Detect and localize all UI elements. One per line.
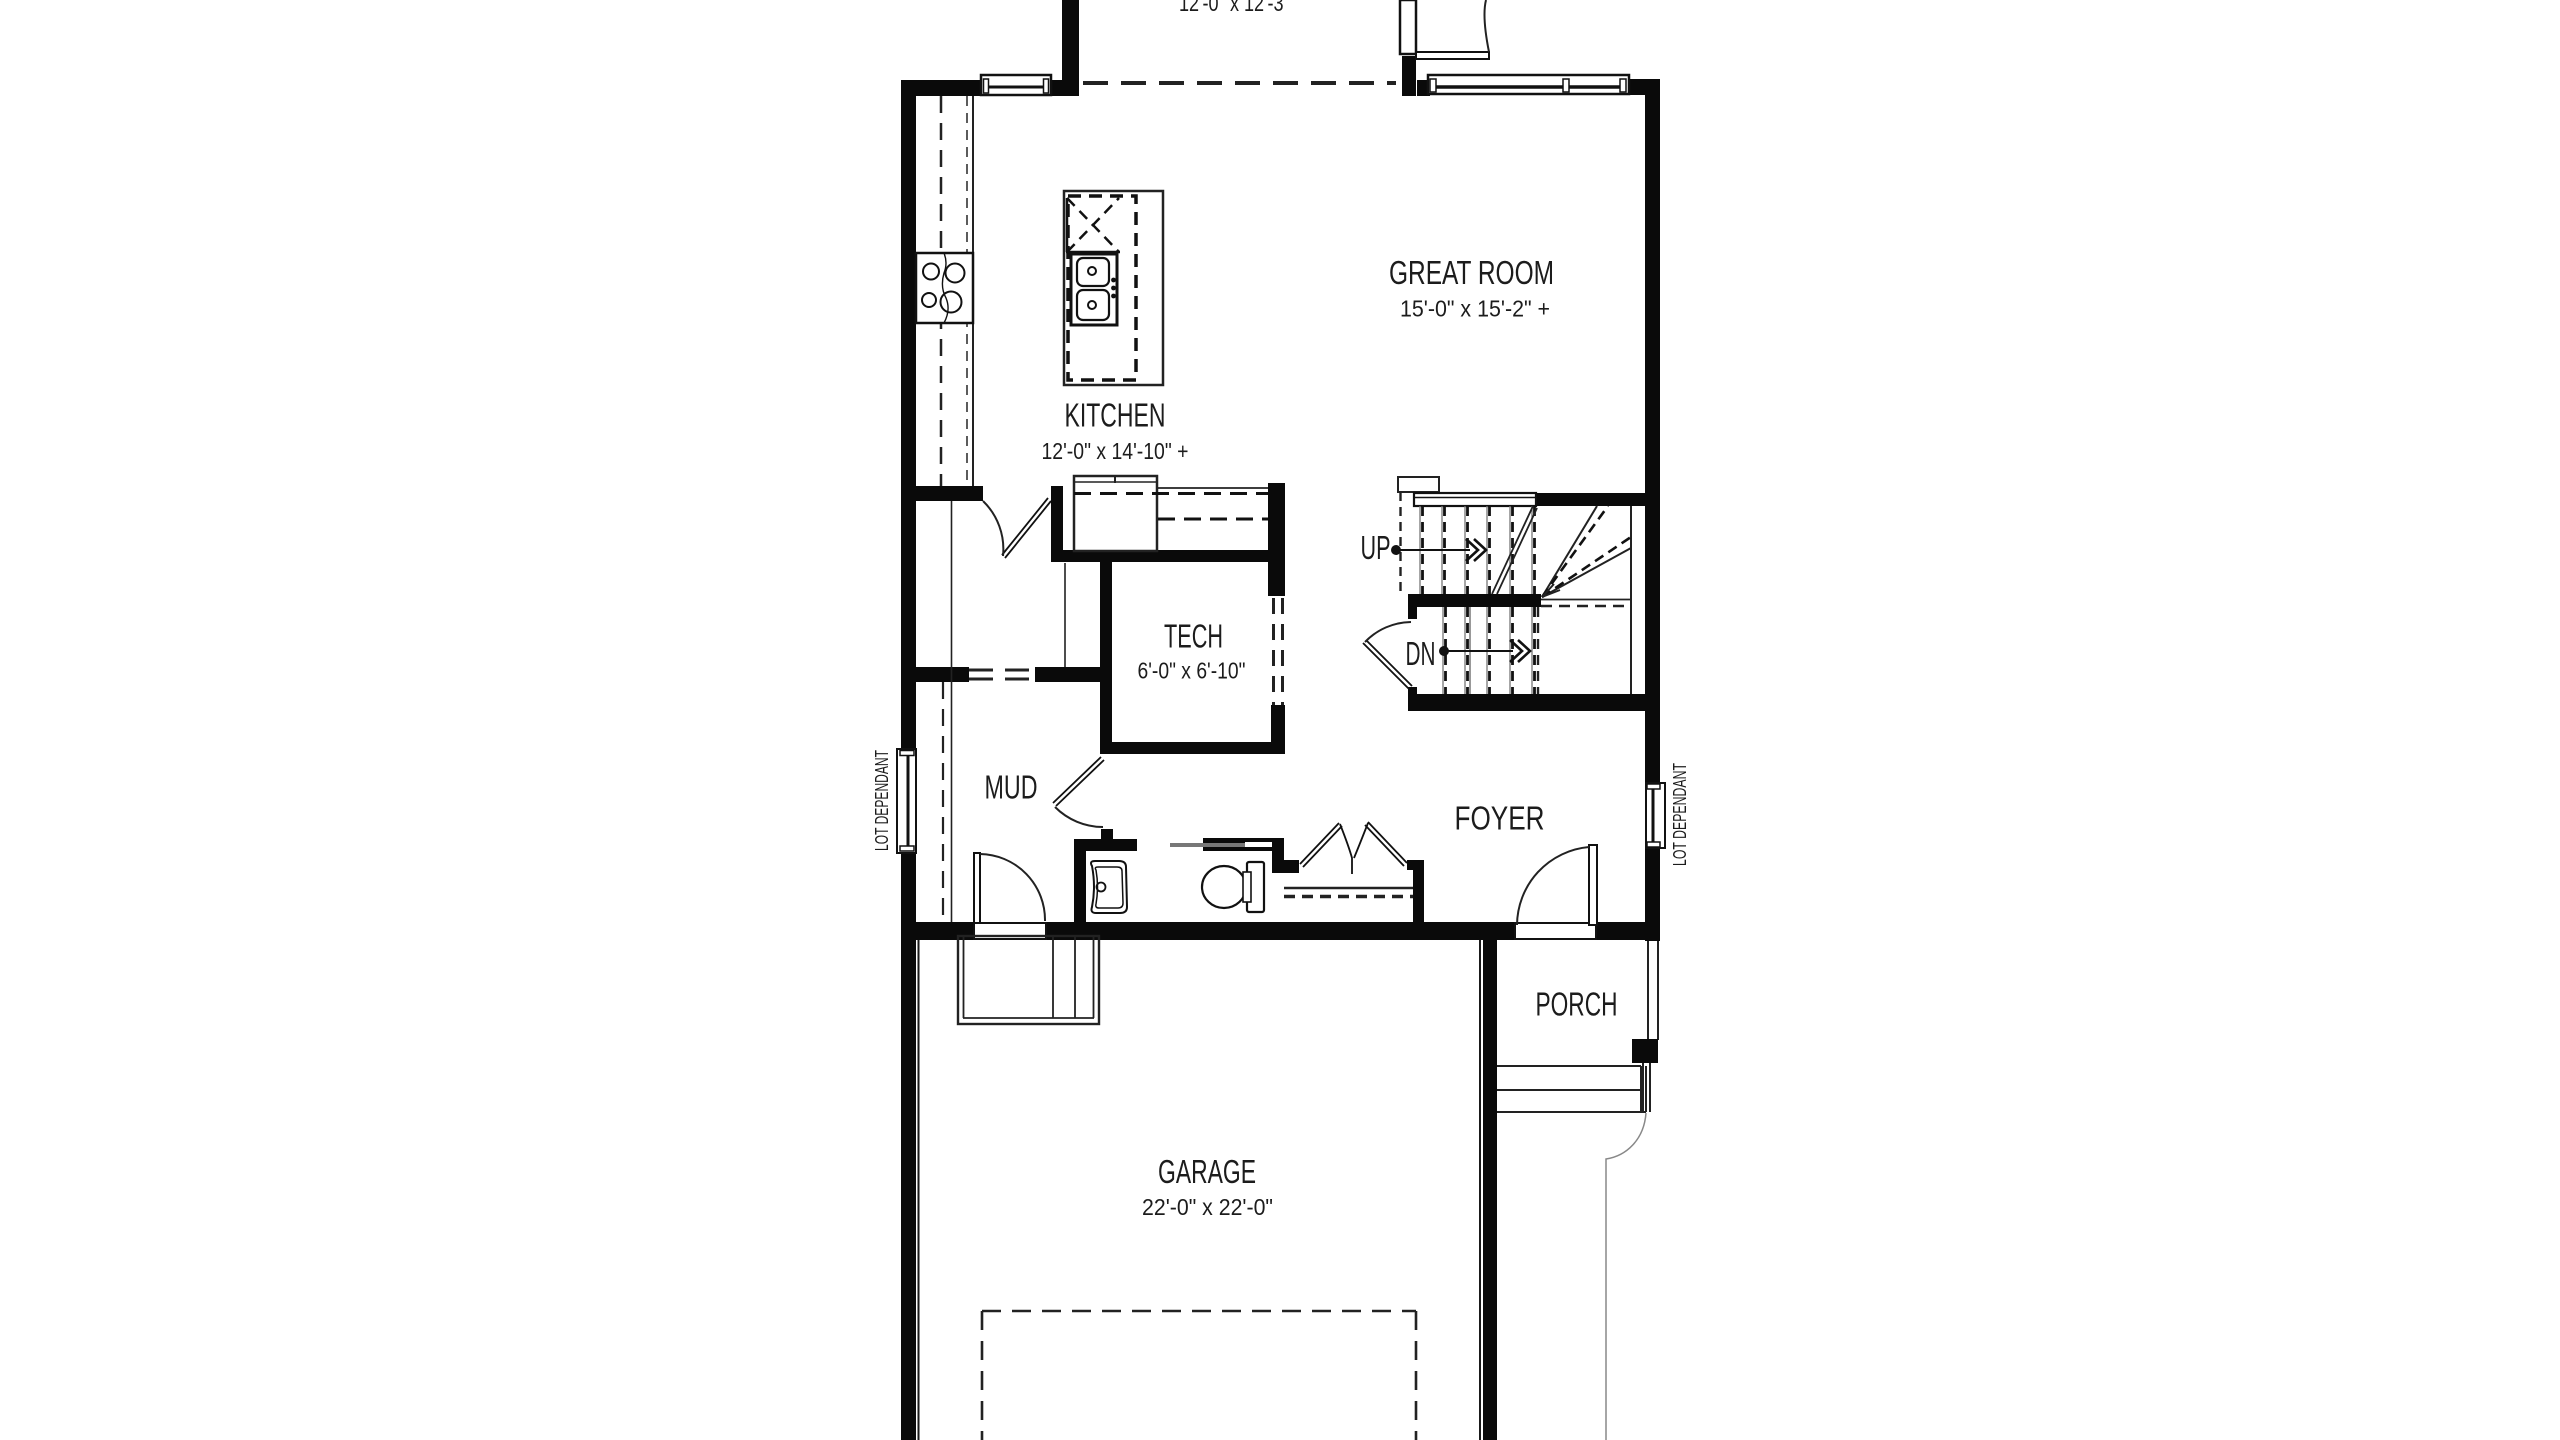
svg-text:12'-0" x 14'-10" +: 12'-0" x 14'-10" + (1042, 438, 1189, 464)
svg-text:12'-0" x 12'-3": 12'-0" x 12'-3" (1179, 0, 1290, 16)
svg-text:FOYER: FOYER (1455, 800, 1545, 837)
svg-text:PORCH: PORCH (1536, 986, 1618, 1023)
svg-text:LOT DEPENDANT: LOT DEPENDANT (872, 750, 892, 851)
svg-text:22'-0" x 22'-0": 22'-0" x 22'-0" (1142, 1194, 1273, 1220)
svg-text:LOT DEPENDANT: LOT DEPENDANT (1670, 763, 1690, 866)
svg-text:UP: UP (1361, 529, 1391, 566)
svg-text:GARAGE: GARAGE (1158, 1153, 1256, 1190)
svg-text:TECH: TECH (1164, 618, 1223, 655)
svg-text:KITCHEN: KITCHEN (1065, 397, 1166, 434)
svg-text:MUD: MUD (985, 769, 1038, 806)
svg-text:6'-0" x 6'-10": 6'-0" x 6'-10" (1138, 658, 1246, 684)
svg-text:GREAT ROOM: GREAT ROOM (1389, 254, 1554, 291)
svg-text:15'-0" x 15'-2" +: 15'-0" x 15'-2" + (1400, 296, 1550, 322)
svg-text:DN: DN (1406, 635, 1436, 672)
